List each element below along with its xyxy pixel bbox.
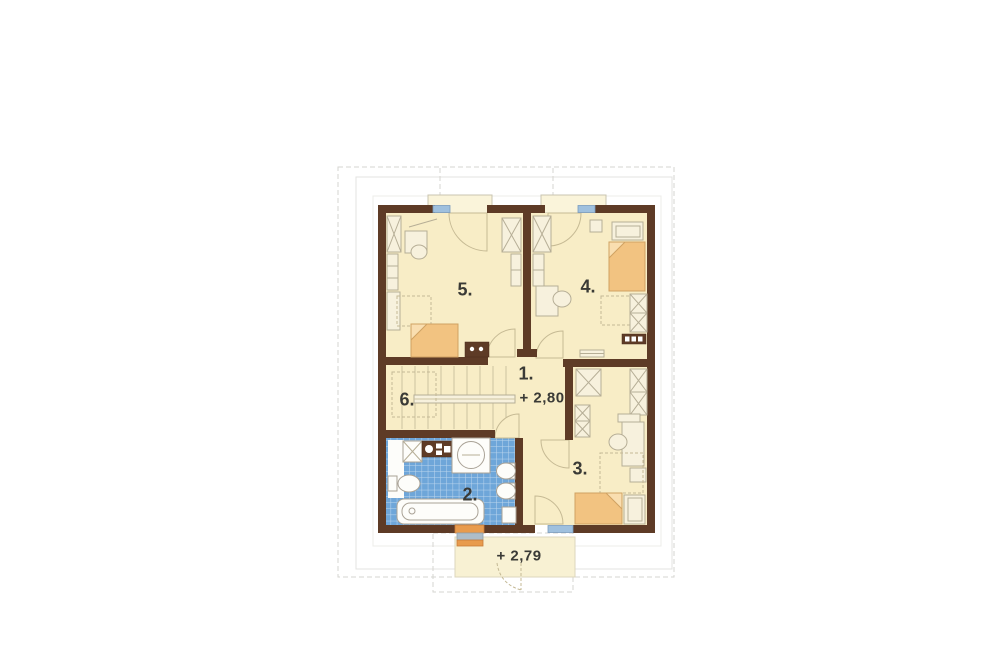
balcony-door-glazing bbox=[548, 526, 573, 533]
room-label-3: 3. bbox=[572, 459, 587, 480]
headboard bbox=[612, 222, 643, 240]
bed bbox=[609, 242, 645, 291]
room-label-4: 4. bbox=[580, 277, 595, 298]
wall-bathroom-top bbox=[386, 430, 495, 438]
bed bbox=[411, 324, 458, 357]
window-dormer-right bbox=[578, 206, 595, 213]
nightstand bbox=[630, 468, 646, 482]
room-label-5: 5. bbox=[457, 280, 472, 301]
dresser bbox=[465, 342, 489, 357]
stool bbox=[590, 220, 602, 232]
balcony-level-label: + 2,79 bbox=[496, 548, 541, 565]
sink-lower bbox=[497, 483, 516, 499]
vanity-counter bbox=[422, 441, 452, 457]
bench bbox=[580, 350, 604, 357]
wall-room5-stairs bbox=[378, 357, 488, 365]
dresser bbox=[624, 495, 645, 524]
room-label-2: 2. bbox=[462, 485, 477, 506]
shower bbox=[452, 438, 490, 473]
shelf bbox=[618, 414, 640, 422]
wall-room4-room3 bbox=[563, 359, 655, 367]
floor-plan-drawing bbox=[0, 0, 1000, 666]
wall-right bbox=[647, 205, 655, 533]
floor-level-label: + 2,80 bbox=[519, 390, 564, 407]
wall-hall-room3 bbox=[565, 367, 573, 440]
floor-plan: 5. 4. 1. + 2,80 6. 2. 3. + 2,79 bbox=[0, 0, 1000, 666]
bed bbox=[575, 493, 622, 524]
bathroom-shelf bbox=[502, 507, 516, 523]
bathroom-window bbox=[455, 525, 484, 546]
room-label-6: 6. bbox=[399, 390, 414, 411]
wall-room5-room4 bbox=[523, 213, 531, 349]
dormer-ridge-lines bbox=[440, 168, 553, 195]
chair bbox=[609, 434, 627, 450]
sink-upper bbox=[497, 463, 516, 479]
radiator bbox=[622, 334, 646, 344]
chair bbox=[411, 245, 427, 259]
wall-left bbox=[378, 205, 386, 533]
cabinets bbox=[630, 369, 647, 415]
cabinets bbox=[630, 294, 647, 332]
toilet bbox=[388, 475, 420, 492]
room-label-1: 1. bbox=[518, 364, 533, 385]
window-dormer-left bbox=[433, 206, 450, 213]
washing-machine bbox=[403, 441, 422, 462]
chair bbox=[553, 291, 571, 307]
